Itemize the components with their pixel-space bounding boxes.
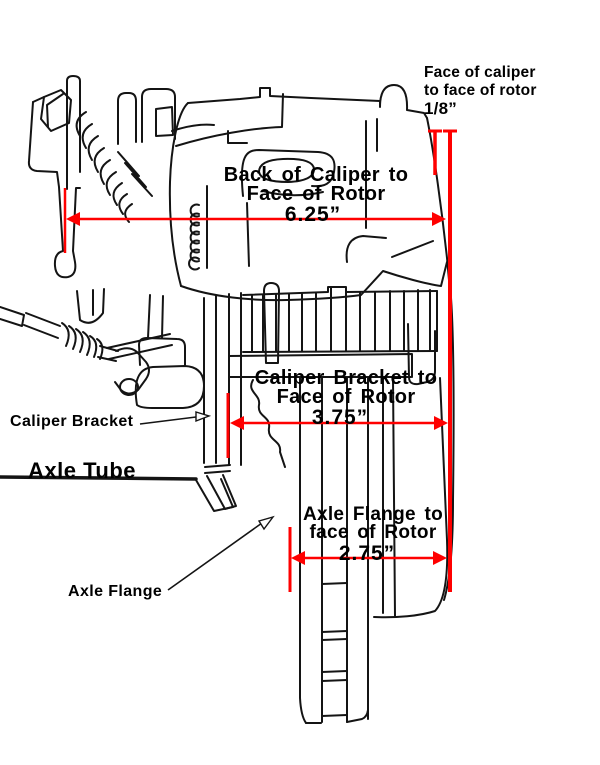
dim-face-value: 1/8”: [424, 100, 537, 118]
dim-label-face-of-caliper: Face of caliper to face of rotor 1/8”: [424, 64, 537, 118]
dim-value-3-75: 3.75”: [312, 406, 368, 430]
dim-value-2-75: 2.75”: [339, 542, 395, 566]
dim-calbr-line2: Face of Rotor: [277, 386, 416, 408]
dim-back-line2: Face of Rotor: [247, 183, 386, 205]
part-label-axle-tube: Axle Tube: [28, 458, 136, 484]
part-label-axle-flange: Axle Flange: [68, 583, 162, 601]
dim-label-axle-flange: Axle Flange to face of Rotor: [303, 506, 443, 542]
upper-bracket-and-bolt: [29, 76, 80, 277]
dim-face-line2: to face of rotor: [424, 82, 537, 99]
mounting-ears: [118, 89, 175, 144]
dim-label-back-of-caliper: Back of Caliper to Face of Rotor: [224, 166, 408, 204]
retainer-clip-coil: [189, 205, 199, 270]
leader-arrow-caliper-bracket: [140, 412, 209, 424]
leader-arrow-axle-flange: [168, 517, 273, 590]
dim-label-caliper-bracket: Caliper Bracket to Face of Rotor: [255, 369, 438, 407]
dim-axfl-line2: face of Rotor: [309, 522, 436, 543]
part-label-caliper-bracket: Caliper Bracket: [10, 413, 133, 431]
dim-value-6-25: 6.25”: [285, 203, 341, 227]
coil-spring: [77, 112, 152, 222]
diagram-canvas: Face of caliper to face of rotor 1/8” Ba…: [0, 0, 600, 765]
tie-rod-linkage: [0, 289, 204, 408]
dim-face-line1: Face of caliper: [424, 64, 536, 81]
